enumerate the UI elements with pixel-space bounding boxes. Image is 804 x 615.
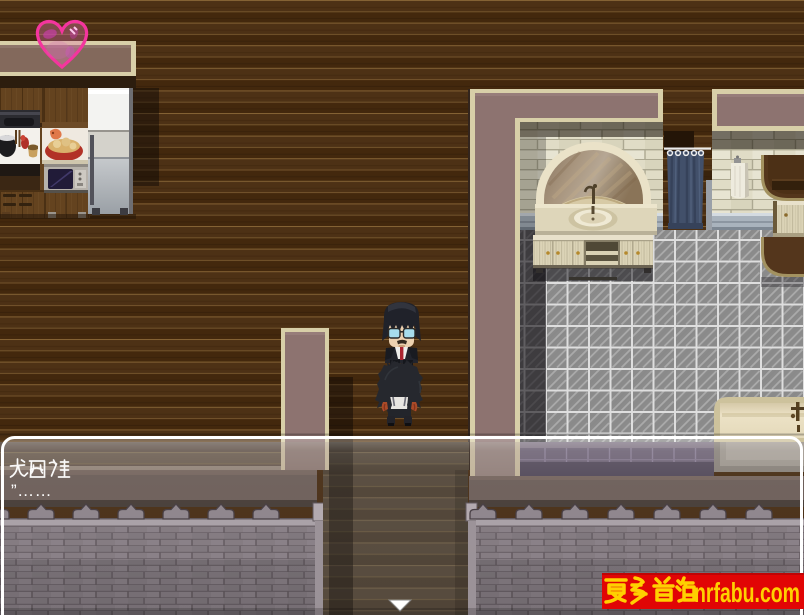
- svg-text:nrfabu.com: nrfabu.com: [694, 577, 800, 608]
- svg-text:”……: ”……: [11, 481, 52, 500]
